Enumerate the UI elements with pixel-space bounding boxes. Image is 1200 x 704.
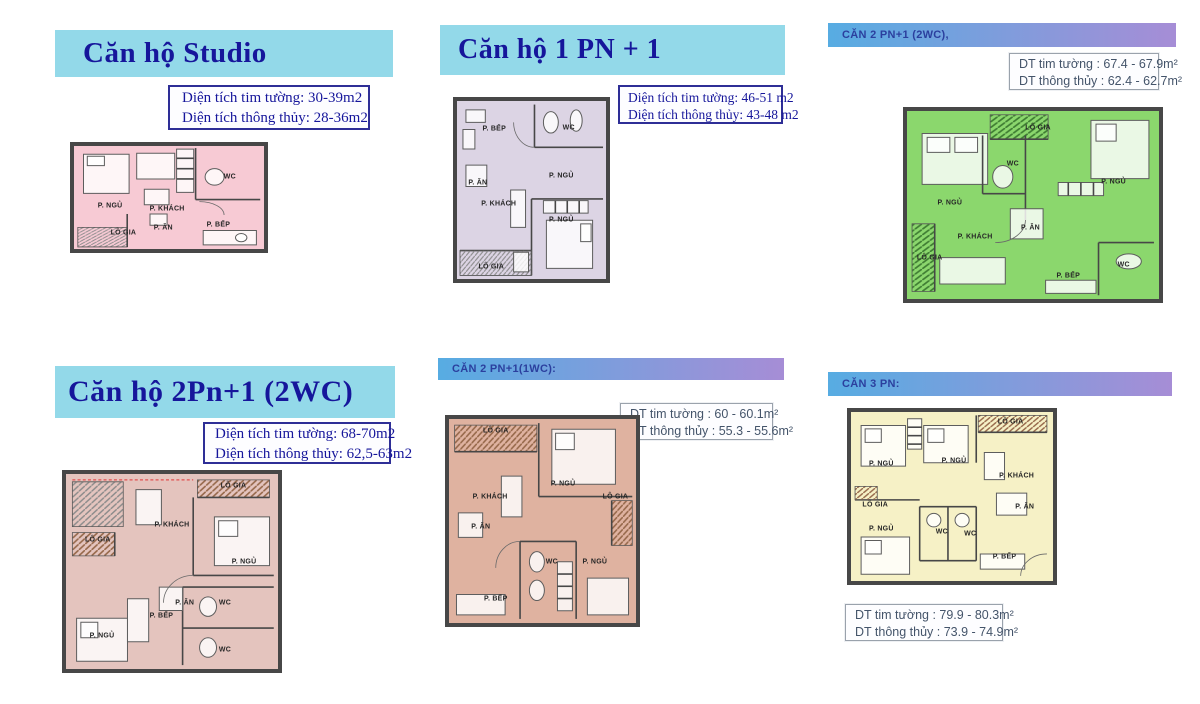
studio-area-thong-thuy: Diện tích thông thủy: 28-36m2 <box>182 108 368 128</box>
room-label: P. KHÁCH <box>999 473 1034 480</box>
3pn-floor-plan: P. NGỦP. NGỦLÔ GIAP. KHÁCHP. ĂNLÔ GIAP. … <box>847 408 1057 585</box>
3pn-area-thong-thuy: DT thông thủy : 73.9 - 74.9m² <box>855 624 1002 641</box>
room-label: LÔ GIA <box>1025 124 1051 131</box>
room-label: WC <box>224 173 236 180</box>
room-label: P. KHÁCH <box>473 493 508 500</box>
2pn1-1wc-area-thong-thuy: DT thông thủy : 55.3 - 55.6m² <box>630 423 772 440</box>
room-label: WC <box>964 530 976 537</box>
room-label: P. BẾP <box>482 126 506 133</box>
room-label: LÔ GIA <box>111 229 137 236</box>
room-label: P. ĂN <box>468 179 487 186</box>
2pn1-2wc-left-title: Căn hộ 2Pn+1 (2WC) <box>55 375 353 409</box>
room-label: P. BẾP <box>150 613 174 620</box>
2pn1-1wc-floor-plan-drawing <box>449 419 636 623</box>
room-label: P. ĂN <box>175 599 194 606</box>
room-label: WC <box>1118 262 1130 269</box>
2pn1-2wc-right-title: CĂN 2 PN+1 (2WC), <box>828 29 949 41</box>
room-label: P. NGỦ <box>549 172 574 179</box>
1pn1-area-thong-thuy: Diện tích thông thủy: 43-48 m2 <box>628 106 781 123</box>
room-label: LÔ GIA <box>221 482 247 489</box>
room-label: P. KHÁCH <box>155 521 190 528</box>
studio-floor-plan-drawing <box>74 146 264 249</box>
room-label: P. ĂN <box>1021 224 1040 231</box>
3pn-title-banner: CĂN 3 PN: <box>828 372 1172 396</box>
2pn1-2wc-left-area-thong-thuy: Diện tích thông thủy: 62,5-63m2 <box>215 445 389 465</box>
2pn1-2wc-left-area-tim-tuong: Diện tích tim tường: 68-70m2 <box>215 425 389 445</box>
room-label: P. BẾP <box>207 222 231 229</box>
room-label: P. NGỦ <box>937 200 962 207</box>
room-label: LÔ GIA <box>917 254 943 261</box>
room-label: WC <box>936 528 948 535</box>
1pn1-title-banner: Căn hộ 1 PN + 1 <box>440 25 785 75</box>
room-label: P. ĂN <box>471 524 490 531</box>
3pn-area-tim-tuong: DT tim tường : 79.9 - 80.3m² <box>855 607 1002 624</box>
room-label: P. KHÁCH <box>481 201 516 208</box>
2pn1-1wc-floor-plan: LÔ GIAP. NGỦP. KHÁCHLÔ GIAP. ĂNWCP. NGỦP… <box>445 415 640 627</box>
2pn1-2wc-right-area-tim-tuong: DT tim tường : 67.4 - 67.9m² <box>1019 56 1158 73</box>
2pn1-2wc-right-area-info-box: DT tim tường : 67.4 - 67.9m² DT thông th… <box>1009 53 1159 90</box>
room-label: P. NGỦ <box>90 632 115 639</box>
room-label: LÔ GIA <box>483 428 509 435</box>
room-label: LÔ GIA <box>85 537 111 544</box>
room-label: LÔ GIA <box>862 501 888 508</box>
room-label: P. ĂN <box>154 225 173 232</box>
room-label: LÔ GIA <box>998 419 1024 426</box>
2pn1-2wc-left-floor-plan-drawing <box>66 474 278 669</box>
1pn1-floor-plan: P. BẾPWCP. ĂNP. NGỦP. KHÁCHP. NGỦLÔ GIA <box>453 97 610 283</box>
room-label: WC <box>219 646 231 653</box>
studio-title: Căn hộ Studio <box>55 37 267 70</box>
room-label: LÔ GIA <box>478 263 504 270</box>
1pn1-area-tim-tuong: Diện tích tim tường: 46-51 m2 <box>628 89 781 106</box>
3pn-title: CĂN 3 PN: <box>828 378 900 390</box>
room-label: P. BẾP <box>1056 273 1080 280</box>
room-label: P. KHÁCH <box>150 205 185 212</box>
1pn1-area-info-box: Diện tích tim tường: 46-51 m2 Diện tích … <box>618 85 783 124</box>
room-label: P. NGỦ <box>551 481 576 488</box>
room-label: P. NGỦ <box>232 558 257 565</box>
room-label: P. NGỦ <box>869 461 894 468</box>
3pn-area-info-box: DT tim tường : 79.9 - 80.3m² DT thông th… <box>845 604 1003 641</box>
2pn1-1wc-area-tim-tuong: DT tim tường : 60 - 60.1m² <box>630 406 772 423</box>
2pn1-2wc-left-area-info-box: Diện tích tim tường: 68-70m2 Diện tích t… <box>203 422 391 464</box>
room-label: P. BẾP <box>993 554 1017 561</box>
room-label: WC <box>1007 160 1019 167</box>
room-label: P. NGỦ <box>942 458 967 465</box>
room-label: P. BẾP <box>484 595 508 602</box>
2pn1-2wc-right-title-banner: CĂN 2 PN+1 (2WC), <box>828 23 1176 47</box>
2pn1-2wc-right-area-thong-thuy: DT thông thủy : 62.4 - 62.7m² <box>1019 73 1158 90</box>
2pn1-1wc-area-info-box: DT tim tường : 60 - 60.1m² DT thông thủy… <box>620 403 773 440</box>
room-label: LÔ GIA <box>603 493 629 500</box>
room-label: P. NGỦ <box>98 202 123 209</box>
2pn1-1wc-title-banner: CĂN 2 PN+1(1WC): <box>438 358 784 380</box>
2pn1-2wc-right-floor-plan: LÔ GIAWCP. NGỦP. NGỦP. KHÁCHP. ĂNLÔ GIAP… <box>903 107 1163 303</box>
room-label: WC <box>219 599 231 606</box>
2pn1-2wc-left-floor-plan: P. KHÁCHLÔ GIAP. NGỦLÔ GIAP. ĂNP. BẾPWCW… <box>62 470 282 673</box>
room-label: P. ĂN <box>1015 503 1034 510</box>
room-label: P. NGỦ <box>583 558 608 565</box>
studio-area-info-box: Diện tích tim tường: 30-39m2 Diện tích t… <box>168 85 370 130</box>
3pn-floor-plan-drawing <box>851 412 1053 581</box>
1pn1-floor-plan-drawing <box>457 101 606 279</box>
room-label: P. KHÁCH <box>958 233 993 240</box>
studio-area-tim-tuong: Diện tích tim tường: 30-39m2 <box>182 88 368 108</box>
1pn1-title: Căn hộ 1 PN + 1 <box>440 34 661 66</box>
room-label: P. NGỦ <box>869 525 894 532</box>
room-label: WC <box>563 124 575 131</box>
studio-title-banner: Căn hộ Studio <box>55 30 393 77</box>
2pn1-2wc-left-title-banner: Căn hộ 2Pn+1 (2WC) <box>55 366 395 418</box>
room-label: WC <box>546 558 558 565</box>
2pn1-1wc-title: CĂN 2 PN+1(1WC): <box>438 363 556 375</box>
room-label: P. NGỦ <box>549 217 574 224</box>
room-label: P. NGỦ <box>1101 179 1126 186</box>
studio-floor-plan: P. NGỦP. KHÁCHWCLÔ GIAP. ĂNP. BẾP <box>70 142 268 253</box>
